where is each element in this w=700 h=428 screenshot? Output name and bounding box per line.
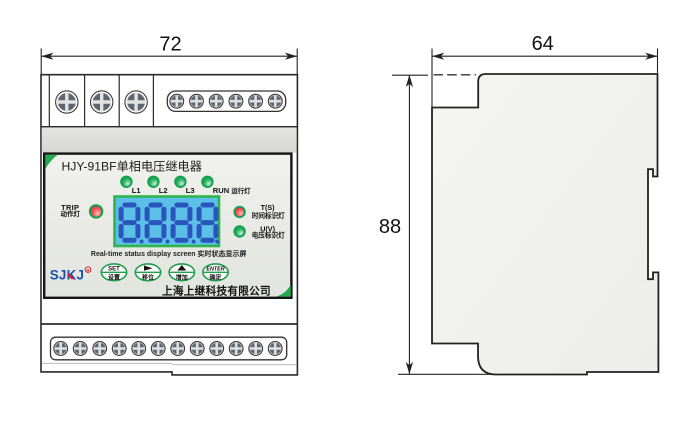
svg-text:ENTER: ENTER xyxy=(206,267,224,273)
svg-text:确定: 确定 xyxy=(209,273,221,281)
svg-text:动作灯: 动作灯 xyxy=(60,209,80,218)
svg-text:L1: L1 xyxy=(132,186,142,195)
svg-text:增加: 增加 xyxy=(176,273,188,281)
svg-text:时间标识灯: 时间标识灯 xyxy=(252,211,285,220)
svg-text:上海上继科技有限公司: 上海上继科技有限公司 xyxy=(162,285,271,298)
svg-text:L2: L2 xyxy=(159,186,168,195)
svg-text:72: 72 xyxy=(159,33,181,55)
svg-text:L3: L3 xyxy=(186,186,195,195)
svg-text:T(S): T(S) xyxy=(261,203,276,212)
svg-text:HJY-91BF单相电压继电器: HJY-91BF单相电压继电器 xyxy=(62,159,202,173)
svg-text:移位: 移位 xyxy=(142,273,154,281)
svg-text:设置: 设置 xyxy=(108,273,120,281)
svg-text:RUN 运行灯: RUN 运行灯 xyxy=(213,186,251,195)
svg-text:64: 64 xyxy=(532,33,554,55)
svg-text:88: 88 xyxy=(379,216,401,238)
svg-text:SET: SET xyxy=(108,267,120,273)
svg-text:电压标识灯: 电压标识灯 xyxy=(252,231,285,240)
svg-text:R: R xyxy=(87,267,90,272)
svg-text:Real-time status display scree: Real-time status display screen 实时状态显示屏 xyxy=(91,249,247,258)
